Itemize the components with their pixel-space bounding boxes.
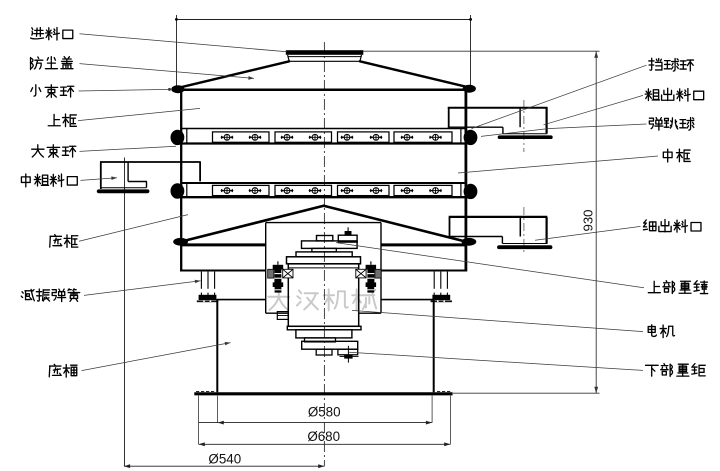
svg-text:Ø680: Ø680	[307, 429, 340, 444]
svg-text:Ø540: Ø540	[208, 452, 241, 467]
svg-text:930: 930	[581, 209, 596, 231]
svg-text:Ø580: Ø580	[308, 405, 341, 420]
